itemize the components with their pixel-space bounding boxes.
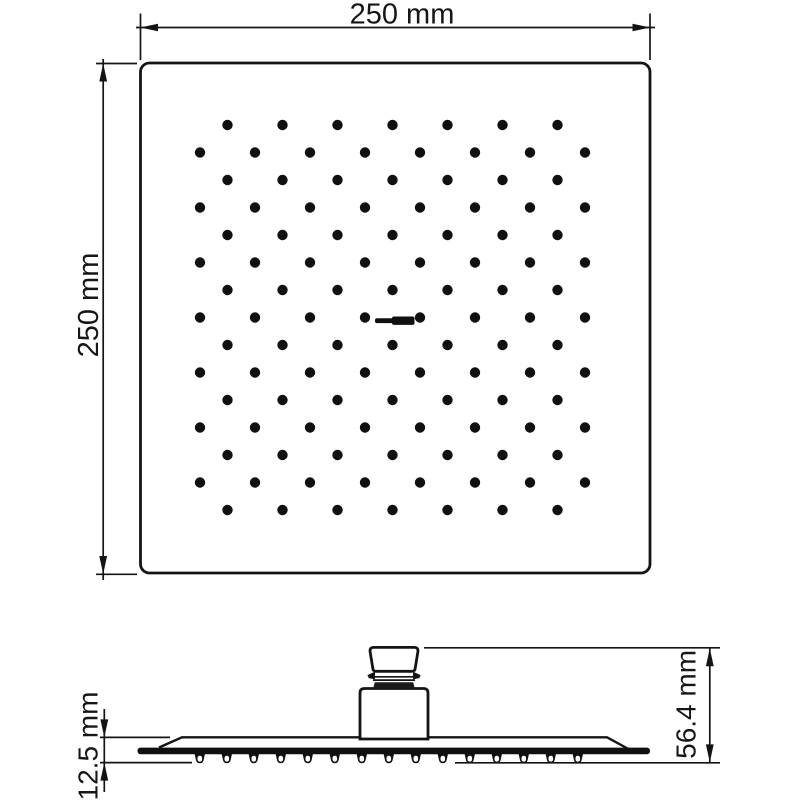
svg-text:56.4 mm: 56.4 mm [671, 650, 702, 759]
svg-text:250 mm: 250 mm [73, 253, 105, 358]
svg-text:12.5 mm: 12.5 mm [73, 692, 104, 800]
svg-text:250 mm: 250 mm [350, 0, 455, 31]
